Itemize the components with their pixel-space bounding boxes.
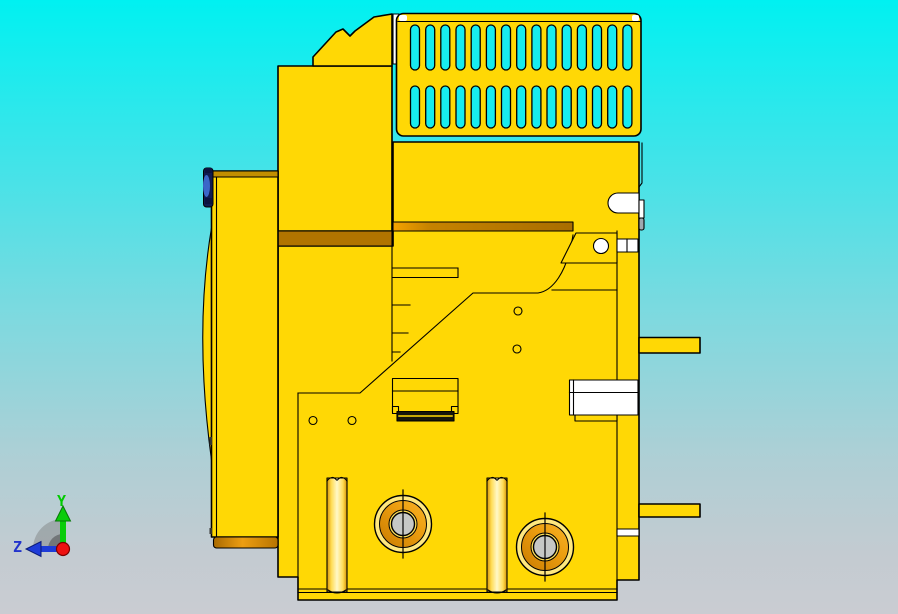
guide-pin-cylinder-right [487, 477, 507, 593]
vent-slot [471, 86, 480, 128]
vent-slot [486, 25, 495, 70]
stadium-cutout [608, 193, 639, 213]
vent-slot [456, 86, 465, 128]
hinge-hardware [203, 168, 213, 207]
vent-panel [397, 14, 642, 137]
vent-slot [562, 86, 571, 128]
vent-slot [441, 86, 450, 128]
vent-slot [577, 25, 586, 70]
vent-slot [426, 25, 435, 70]
vent-slot [411, 86, 420, 128]
vent-slot [593, 25, 602, 70]
vent-slot [623, 86, 632, 128]
shadow-band-left [278, 231, 393, 246]
side-tab-lower [639, 504, 700, 517]
left-column [203, 171, 278, 548]
vent-slot [608, 86, 617, 128]
bracket [393, 379, 459, 422]
vent-slot [562, 25, 571, 70]
vent-slot [456, 25, 465, 70]
vent-slot [593, 86, 602, 128]
z-axis-label: Z [13, 538, 22, 556]
right-column-band [617, 529, 639, 536]
vent-slot [426, 86, 435, 128]
edge-pin [639, 200, 644, 230]
vent-slot [441, 25, 450, 70]
origin-dot [57, 543, 70, 556]
terminal-block [570, 380, 639, 421]
vent-slot [608, 25, 617, 70]
vent-slot [547, 25, 556, 70]
vent-slot [517, 86, 526, 128]
cad-model[interactable] [203, 14, 700, 601]
vent-slot [517, 25, 526, 70]
y-axis-label: Y [57, 492, 66, 510]
vent-slot [502, 25, 511, 70]
vent-slot [623, 25, 632, 70]
upper-left-block [278, 66, 392, 231]
vent-slot [547, 86, 556, 128]
vent-slot [471, 25, 480, 70]
side-tab-upper [639, 338, 700, 354]
vent-slot [411, 25, 420, 70]
vent-slot [532, 86, 541, 128]
vent-slot [532, 25, 541, 70]
shadow-band-right [393, 222, 573, 231]
guide-pin-cylinder-left [327, 477, 347, 593]
vent-slot [486, 86, 495, 128]
cad-viewport[interactable]: Y Z [0, 0, 898, 614]
vent-slot [502, 86, 511, 128]
vent-slot [577, 86, 586, 128]
